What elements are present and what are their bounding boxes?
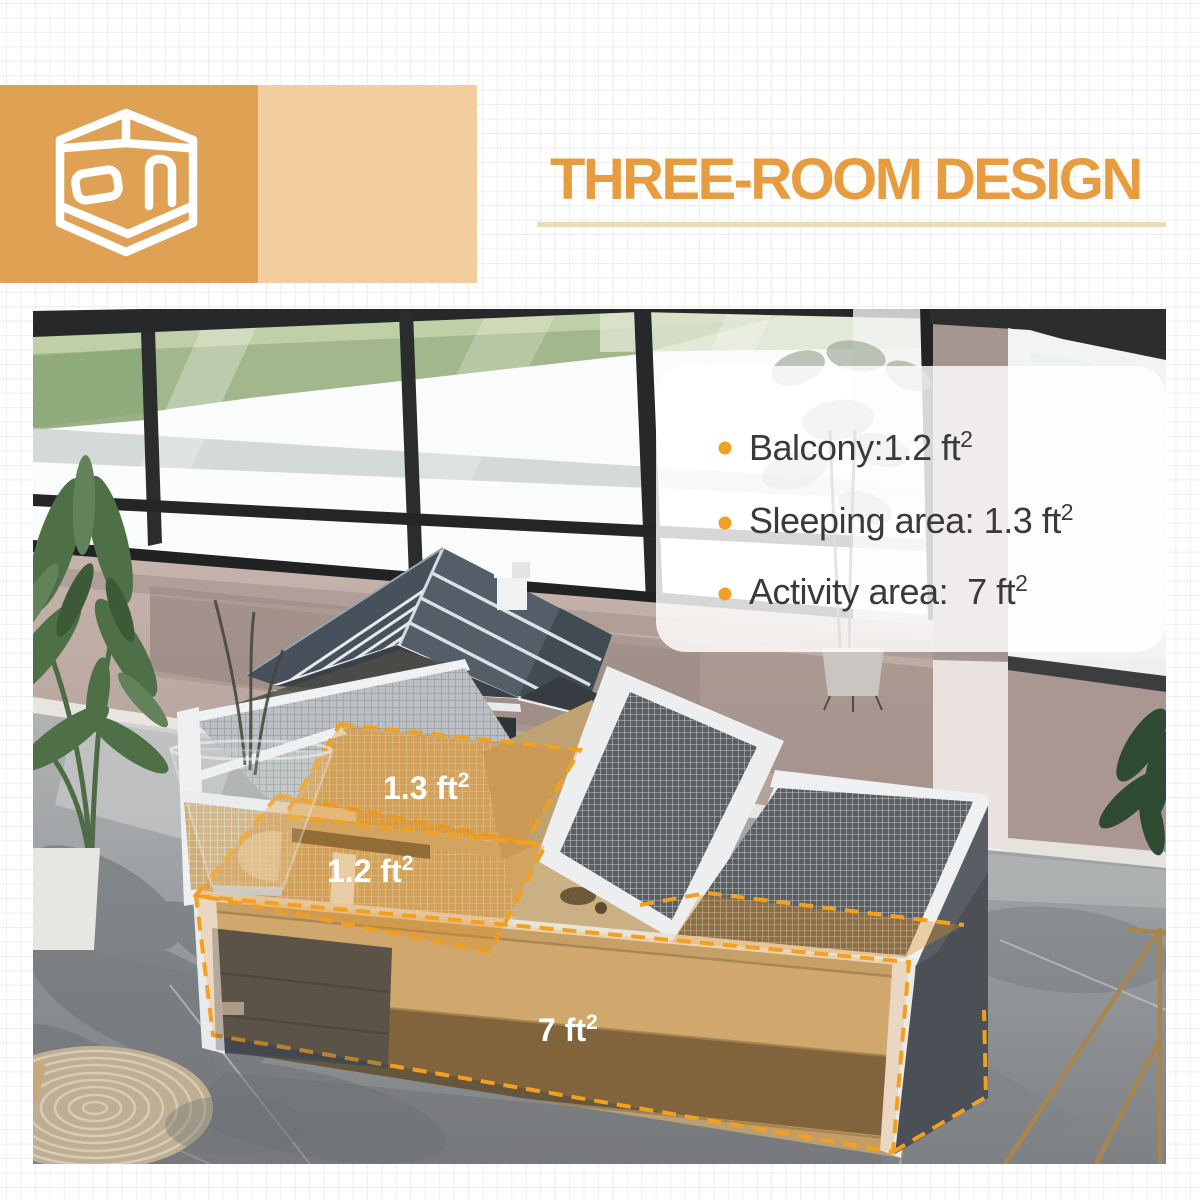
svg-text:Activity area: 7 ft2: Activity area: 7 ft2	[749, 570, 1027, 612]
svg-text:1.3 ft2: 1.3 ft2	[383, 769, 469, 806]
svg-text:Sleeping area: 1.3 ft2: Sleeping area: 1.3 ft2	[749, 499, 1073, 541]
svg-text:Balcony:1.2 ft2: Balcony:1.2 ft2	[749, 426, 972, 468]
svg-text:1.2 ft2: 1.2 ft2	[327, 852, 413, 889]
